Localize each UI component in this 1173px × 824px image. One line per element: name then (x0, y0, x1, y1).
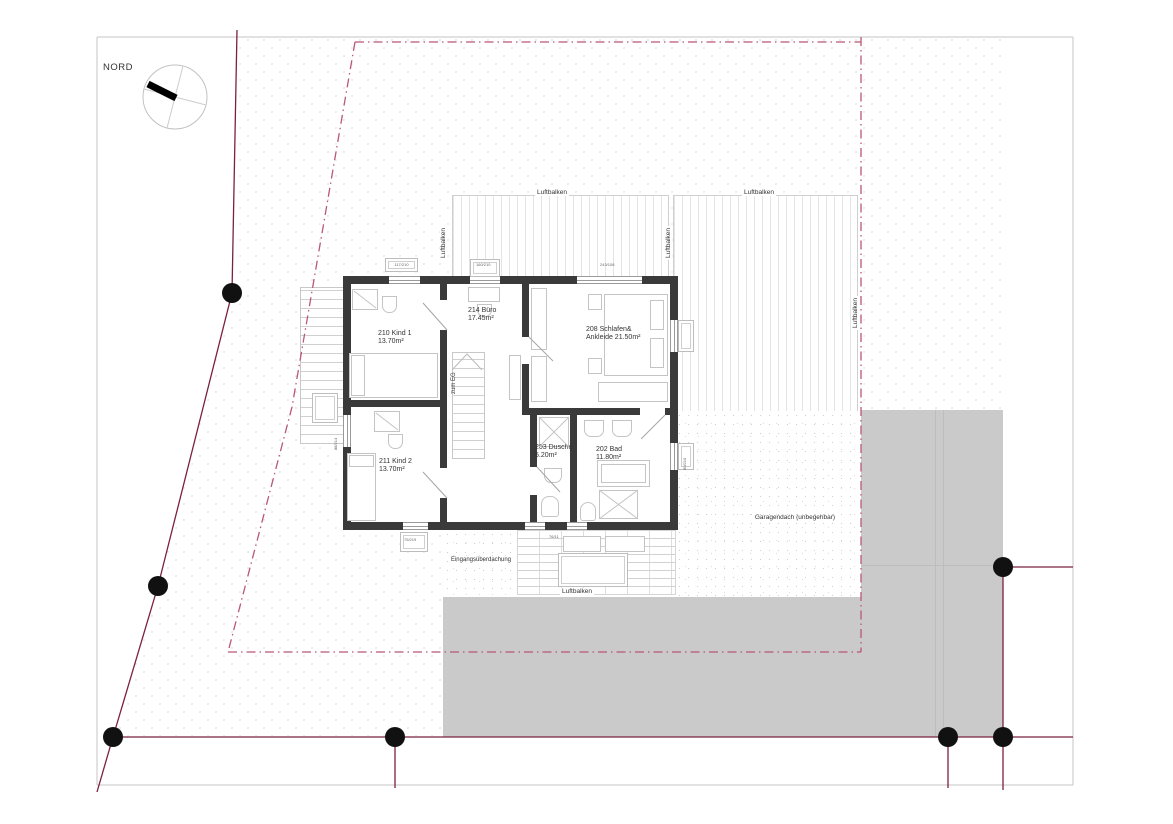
wall (670, 470, 678, 530)
wall (440, 284, 447, 300)
dim-window: 117/210 (386, 262, 417, 267)
garage-roof-label: Garagendach (unbegehbar) (700, 514, 890, 522)
paved-area-right (861, 410, 1003, 737)
wall (500, 276, 577, 284)
wall (522, 364, 529, 408)
room-label-kind1: 210 Kind 1 13.70m² (378, 330, 448, 346)
pillow (349, 455, 374, 467)
paving-joint-line (861, 565, 1003, 566)
wall (670, 276, 678, 320)
closet-row (598, 382, 668, 402)
room-area: 17.45m² (468, 315, 494, 322)
cabinet (509, 355, 521, 400)
room-name: 211 Kind 2 (379, 458, 412, 465)
window (670, 443, 678, 470)
wall (530, 495, 537, 522)
room-area: 13.70m² (378, 338, 404, 345)
paving-joint-line (935, 410, 936, 737)
pillow (351, 355, 365, 396)
room-name: 210 Kind 1 (378, 330, 411, 337)
room-label-buero: 214 Büro 17.45m² (468, 307, 538, 323)
paving-joint-line (943, 410, 944, 737)
pillow (650, 338, 664, 368)
sink (612, 420, 632, 437)
wall (428, 522, 525, 530)
dim-window: 76/11 (549, 534, 559, 539)
window (470, 276, 500, 284)
room-label-bad: 202 Bad 11.80m² (596, 446, 651, 462)
desk (352, 289, 378, 310)
porch-step (563, 536, 601, 552)
wall (343, 522, 403, 530)
dim-exterior-stair: 88/214 (333, 438, 338, 450)
stair-to-ground-floor (452, 352, 485, 459)
room-name: 203 Dusche (535, 444, 572, 451)
room-label-dusche: 203 Dusche 5.20m² (535, 444, 575, 460)
dim-window: 243/108 (600, 262, 614, 267)
desk (468, 287, 500, 302)
wall (587, 522, 678, 530)
dim-window: 75/219 (404, 537, 416, 542)
wall-marker (536, 408, 540, 412)
wall (665, 408, 678, 415)
chair (382, 296, 397, 313)
room-area: 5.20m² (535, 452, 557, 459)
north-compass-icon (143, 65, 207, 129)
exterior-stair-landing (312, 393, 338, 423)
wall (420, 276, 470, 284)
room-name: 202 Bad (596, 446, 622, 453)
entrance-canopy-label: Eingangsüberdachung (441, 556, 521, 564)
bathtub-inner (601, 464, 646, 483)
garage-roof-area (675, 411, 858, 596)
luftbalken-label-top-right: Luftbalken (742, 189, 776, 196)
luftbalken-label-right-rot: Luftbalken (852, 296, 859, 330)
wall-marker (529, 408, 533, 412)
window (525, 522, 545, 530)
room-area: 11.80m² (596, 454, 621, 461)
porch-skylight (558, 553, 628, 587)
wall (440, 498, 447, 522)
luftbalken-label-bottom: Luftbalken (560, 588, 594, 595)
sink (544, 468, 562, 483)
entrance-door (567, 522, 587, 530)
wall (545, 522, 567, 530)
wall (670, 352, 678, 443)
dim-window: 80/210 (682, 458, 687, 470)
shower (599, 490, 638, 519)
sink (584, 420, 604, 437)
luftbalken-label-mid-rot: Luftbalken (665, 226, 672, 260)
dim-window: 160/210 (476, 262, 490, 267)
luftbalken-label-left-rot: Luftbalken (440, 226, 447, 260)
room-label-schlafen: 208 Schlafen& Ankleide 21.50m² (586, 326, 676, 342)
stair-label: zum EG (450, 372, 458, 394)
paved-terrace-bottom (443, 597, 861, 737)
shower (539, 417, 569, 447)
room-name: 214 Büro (468, 307, 496, 314)
site-plan-sheet: Garagendach (unbegehbar) Eingangsüberdac… (0, 0, 1173, 824)
wall (343, 400, 447, 407)
room-area: 13.70m² (379, 466, 405, 473)
window (343, 415, 351, 447)
toilet (541, 496, 559, 517)
porch-step (605, 536, 645, 552)
desk (374, 411, 400, 432)
room-name: 208 Schlafen& (586, 326, 632, 333)
nightstand (588, 358, 602, 374)
north-label: NORD (103, 64, 133, 72)
window (577, 276, 642, 284)
wall (570, 415, 577, 522)
chair (388, 434, 403, 449)
window (389, 276, 420, 284)
room-area: Ankleide 21.50m² (586, 334, 640, 341)
window-frame-bottom (400, 532, 428, 552)
room-label-kind2: 211 Kind 2 13.70m² (379, 458, 449, 474)
nightstand (588, 294, 602, 310)
window (403, 522, 428, 530)
roof-area-right (673, 195, 858, 413)
toilet (580, 502, 596, 521)
luftbalken-label-top-left: Luftbalken (535, 189, 569, 196)
wardrobe (531, 356, 547, 402)
window-frame-right (678, 320, 694, 352)
